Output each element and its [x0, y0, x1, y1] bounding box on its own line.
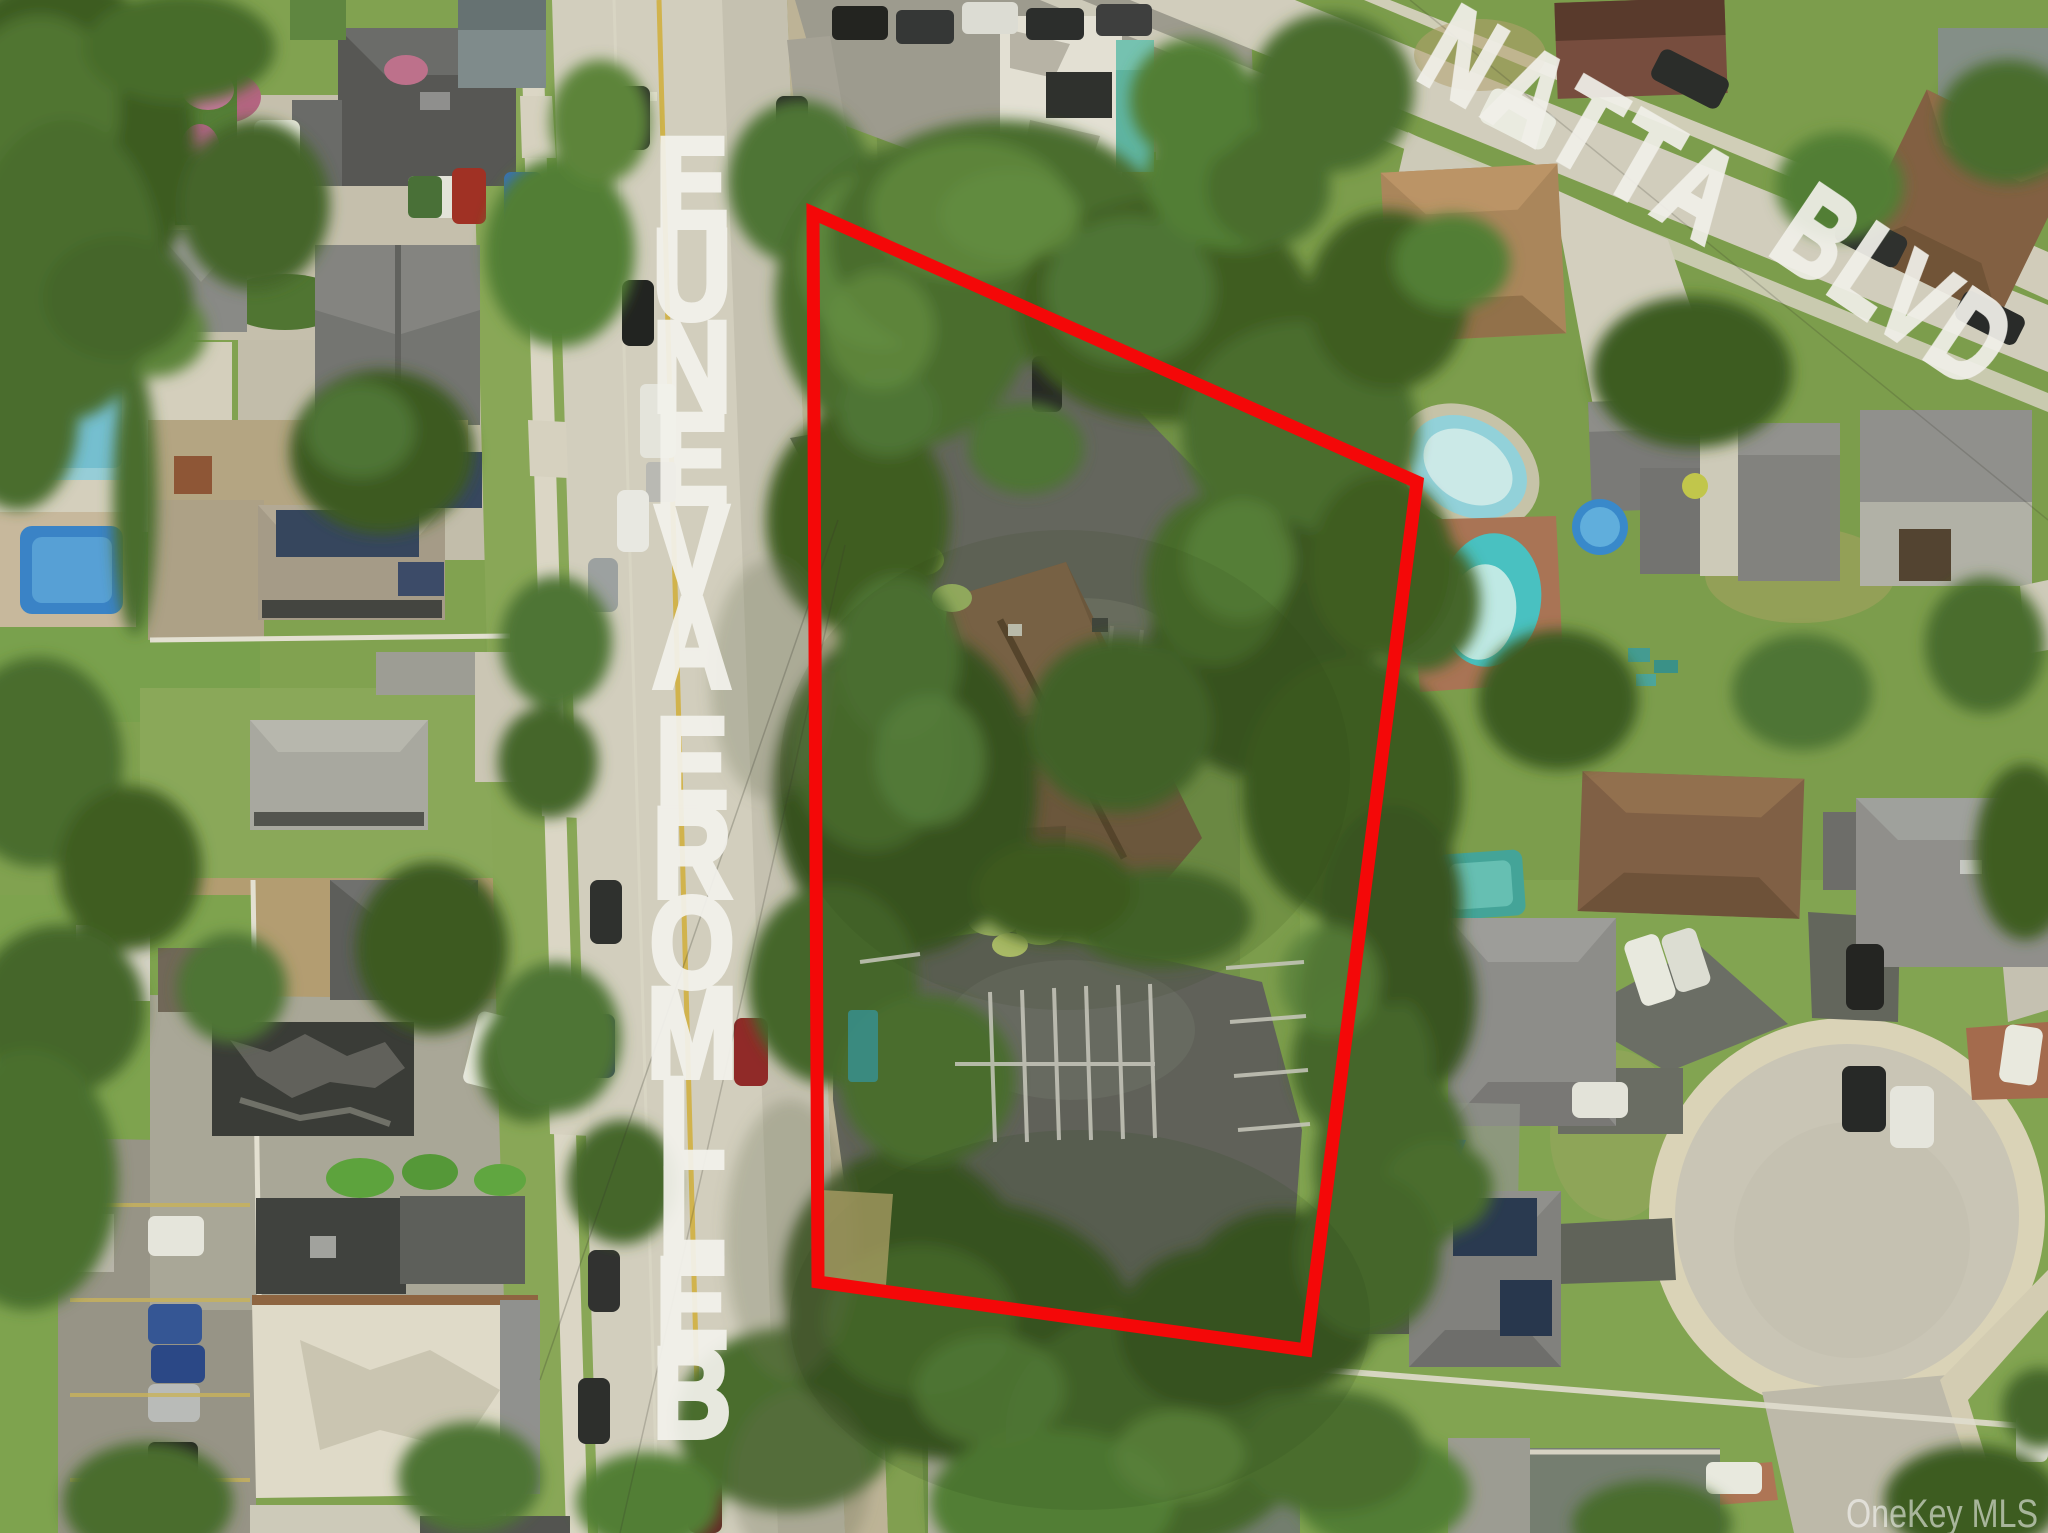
svg-text:B: B [653, 1322, 732, 1465]
svg-text:OneKey MLS: OneKey MLS [1846, 1492, 2038, 1533]
